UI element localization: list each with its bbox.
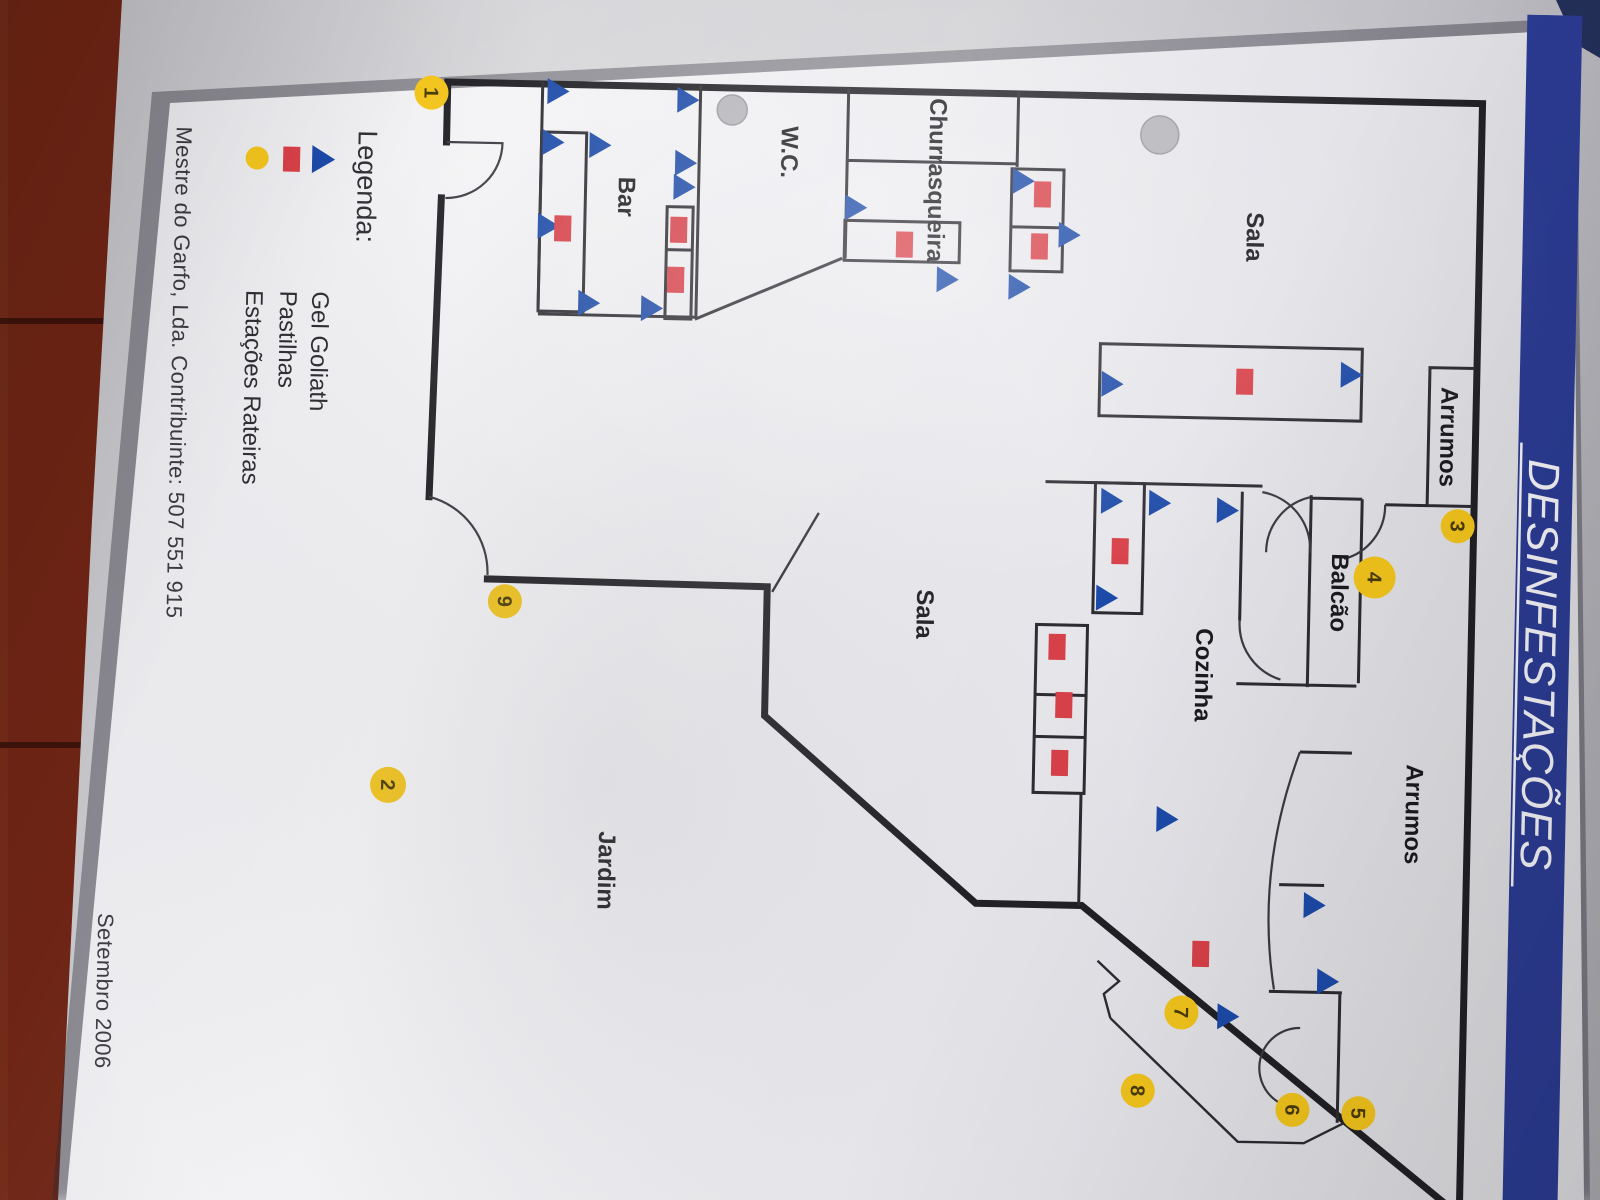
gel-goliath-point bbox=[1156, 806, 1179, 832]
rat-station-number: 5 bbox=[1346, 1107, 1368, 1119]
photo-of-floorplan-document: DESINFESTAÇÕES bbox=[0, 0, 1600, 1200]
station-circle-icon bbox=[245, 146, 268, 169]
room-label: Bar bbox=[612, 176, 640, 217]
gel-goliath-point bbox=[673, 174, 696, 200]
company-contact-line: Mestre do Garfo, Lda. Contribuinte: 507 … bbox=[161, 126, 196, 619]
pastilha-point bbox=[1192, 941, 1210, 967]
punch-hole bbox=[717, 95, 748, 126]
legend-heading: Legenda: bbox=[350, 130, 382, 243]
gel-triangle-icon bbox=[312, 145, 336, 173]
punch-hole bbox=[1140, 116, 1179, 155]
pastilha-square-icon bbox=[283, 147, 301, 172]
room-label: W.C. bbox=[775, 126, 803, 179]
room-labels: SalaArrumosBalcãoCozinhaArrumosSalaJardi… bbox=[591, 91, 1468, 927]
garden-boundary bbox=[761, 512, 1357, 1144]
pastilha-point bbox=[1055, 692, 1073, 718]
gel-goliath-point bbox=[589, 132, 612, 158]
document-date: Setembro 2006 bbox=[90, 913, 118, 1069]
rat-station-number: 8 bbox=[1126, 1085, 1148, 1097]
rat-station-number: 7 bbox=[1169, 1007, 1191, 1019]
legend-item-label: Pastilhas bbox=[272, 290, 301, 388]
room-label: Churrasqueira bbox=[921, 98, 951, 263]
room-label: Balcão bbox=[1324, 553, 1353, 632]
gel-goliath-point bbox=[845, 194, 868, 220]
pastilha-point bbox=[1048, 634, 1066, 660]
gel-goliath-point bbox=[1008, 274, 1031, 300]
room-label: Sala bbox=[910, 589, 938, 640]
pastilha-point bbox=[896, 231, 914, 257]
gel-goliath-point bbox=[1341, 362, 1364, 388]
gel-goliath-point bbox=[1101, 371, 1124, 397]
gel-goliath-point bbox=[1096, 585, 1119, 611]
gel-goliath-point bbox=[1303, 892, 1326, 918]
room-label: Jardim bbox=[591, 831, 620, 910]
pastilha-markers bbox=[539, 171, 1257, 968]
gel-goliath-point bbox=[578, 290, 601, 316]
gel-goliath-point bbox=[1013, 168, 1036, 194]
pastilha-point bbox=[667, 267, 685, 293]
room-label: Arrumos bbox=[1434, 387, 1463, 488]
pastilha-point bbox=[554, 215, 572, 241]
rat-station-number: 6 bbox=[1280, 1104, 1302, 1116]
pastilha-point bbox=[1051, 750, 1069, 776]
rat-station-number: 3 bbox=[1446, 520, 1468, 532]
rat-station-number: 2 bbox=[376, 779, 398, 791]
pastilha-point bbox=[1236, 369, 1254, 395]
gel-goliath-point bbox=[1149, 490, 1172, 516]
gel-goliath-point bbox=[1217, 497, 1240, 523]
floorplan-svg: DESINFESTAÇÕES bbox=[63, 0, 1588, 1200]
rat-station-number: 9 bbox=[493, 595, 515, 607]
legend-item-label: Estações Rateiras bbox=[236, 290, 267, 485]
legend-item-label: Gel Goliath bbox=[304, 291, 334, 412]
room-label: Cozinha bbox=[1189, 628, 1218, 723]
gel-goliath-point bbox=[675, 150, 698, 176]
pastilha-point bbox=[1111, 538, 1129, 564]
gel-goliath-point bbox=[1058, 222, 1081, 248]
gel-goliath-point bbox=[1317, 968, 1340, 994]
pastilha-point bbox=[670, 217, 688, 243]
gel-goliath-point bbox=[1101, 488, 1124, 514]
document-content-rotated: DESINFESTAÇÕES bbox=[63, 0, 1588, 1200]
pastilha-point bbox=[1031, 233, 1049, 259]
door-arcs bbox=[417, 142, 1393, 1110]
rat-station-number: 4 bbox=[1362, 572, 1384, 584]
gel-goliath-point bbox=[677, 87, 700, 113]
pastilha-point bbox=[1034, 181, 1052, 207]
gel-goliath-point bbox=[936, 266, 959, 292]
room-label: Arrumos bbox=[1399, 764, 1428, 865]
room-label: Sala bbox=[1240, 212, 1268, 263]
rat-station-number: 1 bbox=[419, 87, 441, 99]
legend: Legenda: Gel Goliath Pastilhas Estações … bbox=[236, 128, 382, 488]
